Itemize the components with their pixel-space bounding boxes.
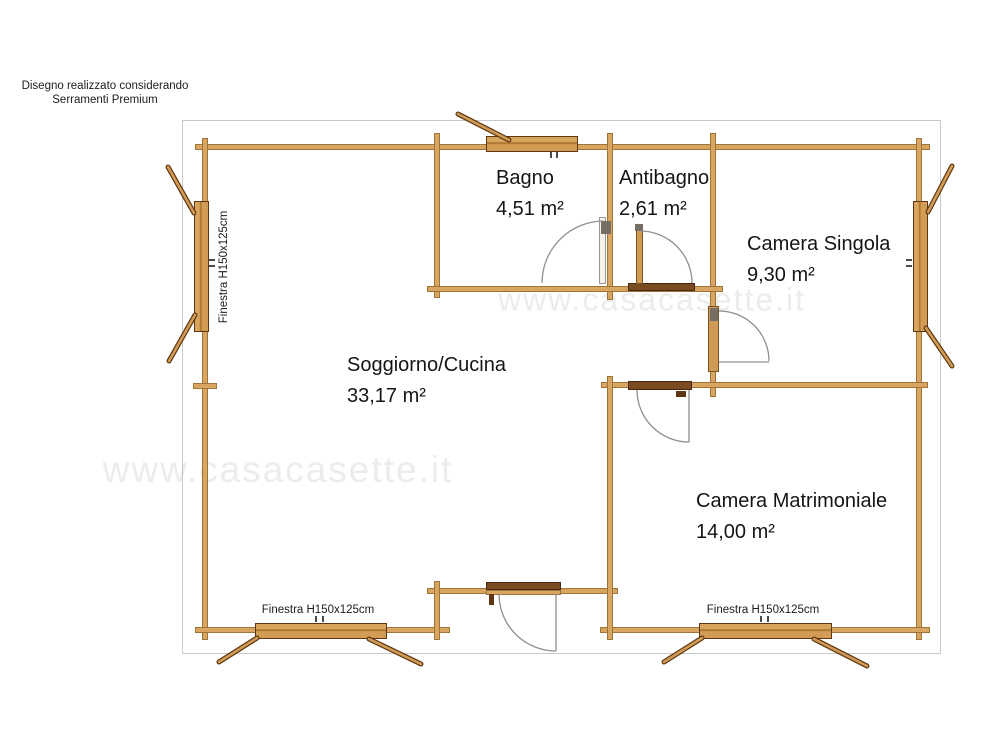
wall-matrimoniale-left [607, 376, 613, 640]
antibagno-door-leaf [636, 227, 643, 284]
window-tick [556, 152, 558, 158]
window-tick [315, 616, 317, 622]
window-label-bottom-right: Finestra H150x125cm [707, 604, 820, 616]
entrance-door-hinge [489, 594, 494, 605]
window-tick [550, 152, 552, 158]
window-label-left: Finestra H150x125cm [218, 211, 230, 324]
room-name: Bagno [496, 166, 564, 190]
window-tick [322, 616, 324, 622]
room-area: 4,51 m² [496, 197, 564, 221]
room-area: 2,61 m² [619, 197, 709, 221]
window-bottom-right [699, 623, 832, 639]
entrance-door-plank-edge [486, 590, 561, 595]
room-area: 14,00 m² [696, 520, 887, 544]
drawing-note-line2: Serramenti Premium [12, 94, 198, 108]
room-name: Soggiorno/Cucina [347, 353, 506, 377]
window-right [913, 201, 928, 332]
matrimoniale-door-sill [628, 381, 692, 390]
window-bottom-left [255, 623, 387, 639]
antibagno-door-stop [635, 224, 643, 231]
window-top [486, 136, 578, 152]
floor-plan-canvas: www.casacasette.it www.casacasette.it [0, 0, 1000, 744]
window-tick [906, 265, 912, 267]
window-tick [209, 259, 215, 261]
drawing-note: Disegno realizzato considerando Serramen… [12, 80, 198, 107]
window-tick [209, 265, 215, 267]
room-area: 33,17 m² [347, 384, 506, 408]
room-area: 9,30 m² [747, 263, 890, 287]
wall-bagno-left [434, 133, 440, 298]
matrimoniale-door-hinge [676, 391, 686, 397]
room-label-camera-matrimoniale: Camera Matrimoniale 14,00 m² [696, 489, 887, 544]
room-label-antibagno: Antibagno 2,61 m² [619, 166, 709, 221]
room-name: Camera Matrimoniale [696, 489, 887, 513]
window-tick [760, 616, 762, 622]
window-left [194, 201, 209, 332]
room-name: Antibagno [619, 166, 709, 190]
room-label-camera-singola: Camera Singola 9,30 m² [747, 232, 890, 287]
singola-door-stop [710, 308, 718, 321]
bagno-door-stop [601, 221, 611, 234]
room-label-soggiorno-cucina: Soggiorno/Cucina 33,17 m² [347, 353, 506, 408]
drawing-note-line1: Disegno realizzato considerando [12, 80, 198, 94]
wall-bagno-antibagno [607, 133, 613, 300]
wall-porch-connector [434, 581, 440, 640]
window-tick [767, 616, 769, 622]
entrance-door-plank [486, 582, 561, 590]
window-tick [906, 259, 912, 261]
room-name: Camera Singola [747, 232, 890, 256]
log-stub-left [193, 383, 217, 389]
antibagno-door-sill [628, 283, 695, 291]
room-label-bagno: Bagno 4,51 m² [496, 166, 564, 221]
window-label-bottom-left: Finestra H150x125cm [262, 604, 375, 616]
